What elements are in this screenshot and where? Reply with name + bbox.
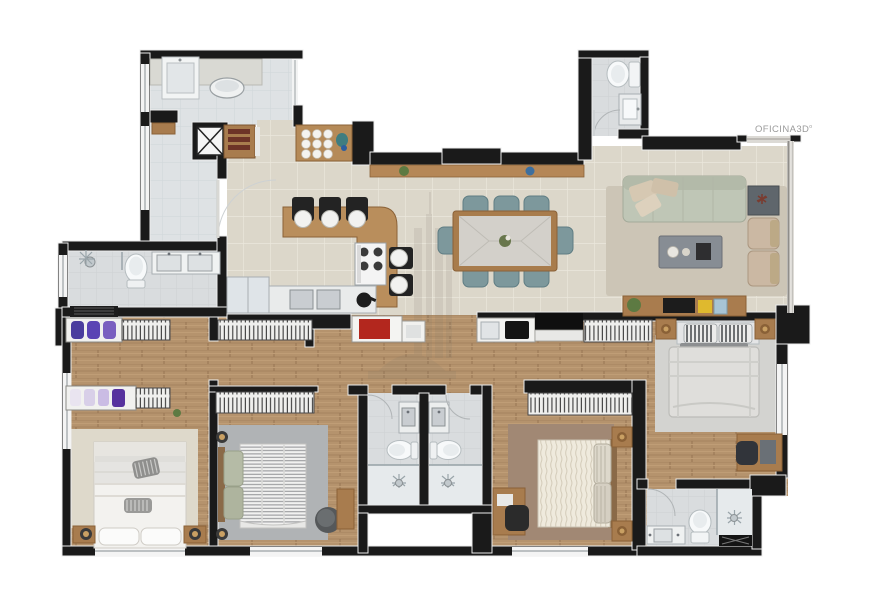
svg-text:OFICINA3Do: OFICINA3Do <box>755 124 812 135</box>
